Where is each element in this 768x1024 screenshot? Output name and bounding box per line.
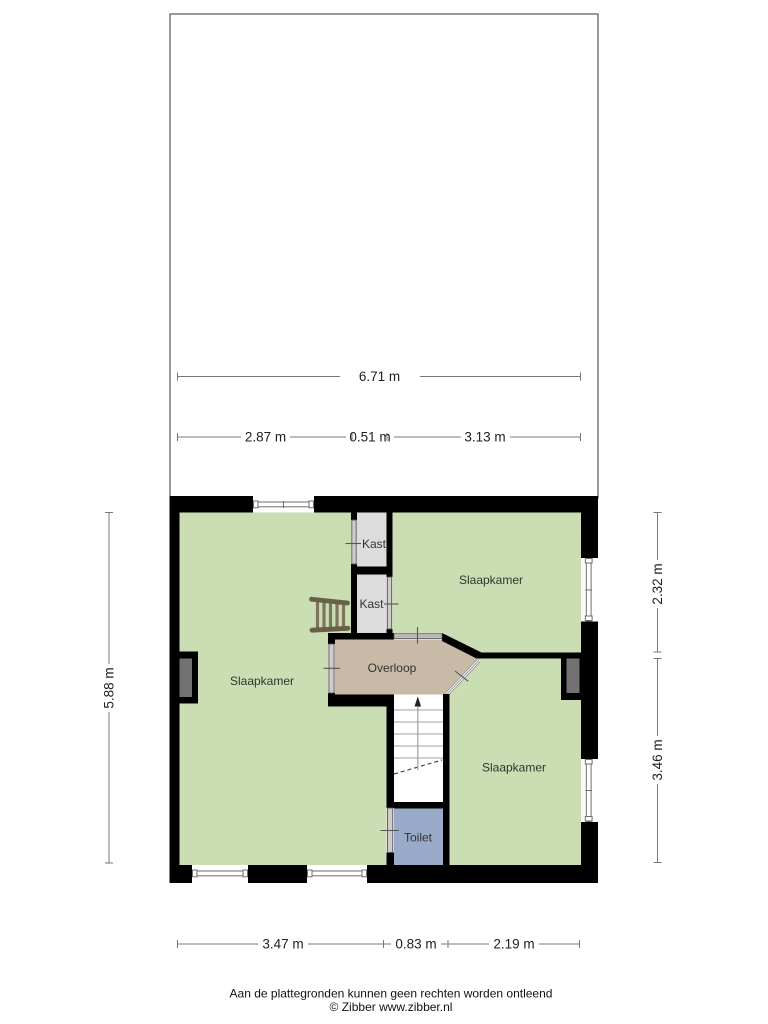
svg-text:2.32 m: 2.32 m [650,563,665,604]
svg-text:Toilet: Toilet [404,831,433,845]
svg-text:Aan de plattegronden kunnen ge: Aan de plattegronden kunnen geen rechten… [230,987,553,1001]
svg-text:2.19 m: 2.19 m [493,937,534,952]
svg-text:0.51 m: 0.51 m [349,430,390,445]
svg-text:© Zibber www.zibber.nl: © Zibber www.zibber.nl [330,1000,453,1014]
svg-text:Kast: Kast [359,597,384,611]
svg-text:3.13 m: 3.13 m [464,430,505,445]
svg-text:Slaapkamer: Slaapkamer [482,761,546,775]
svg-text:Slaapkamer: Slaapkamer [459,573,523,587]
svg-text:Kast: Kast [362,537,387,551]
svg-text:5.88 m: 5.88 m [102,667,117,708]
svg-text:0.83 m: 0.83 m [395,937,436,952]
svg-text:Slaapkamer: Slaapkamer [230,674,294,688]
svg-text:3.46 m: 3.46 m [650,739,665,780]
svg-text:2.87 m: 2.87 m [245,430,286,445]
svg-text:Overloop: Overloop [368,661,417,675]
svg-text:3.47 m: 3.47 m [262,937,303,952]
svg-text:6.71 m: 6.71 m [359,369,400,384]
